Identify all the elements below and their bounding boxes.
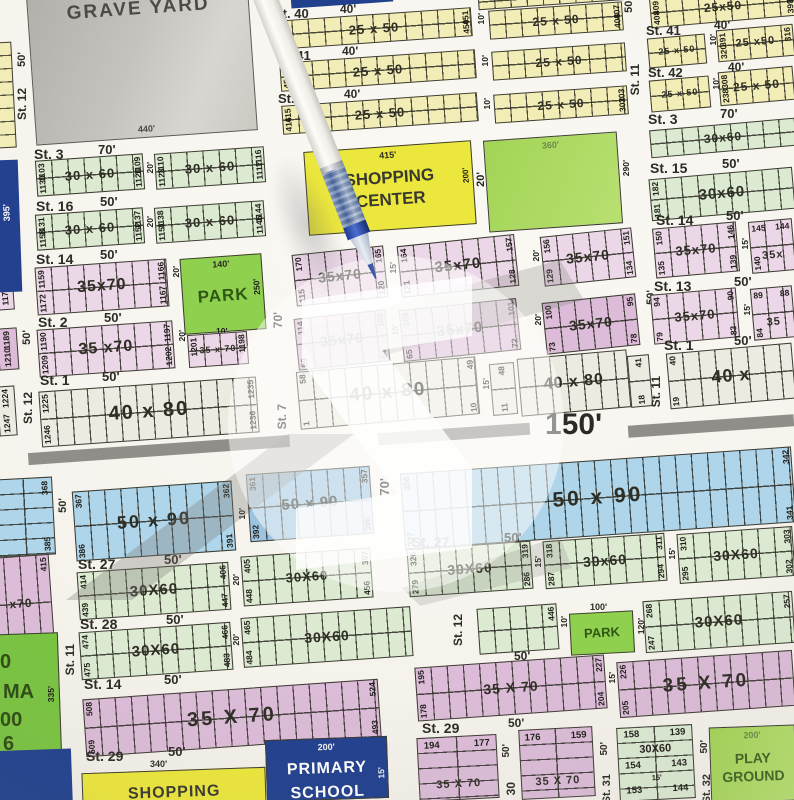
street-st16: St. 16 <box>36 199 73 213</box>
street-st1r: St. 1 <box>664 338 694 352</box>
plot-number: 95 <box>625 296 634 306</box>
street-st15r-width: 50' <box>722 157 740 170</box>
plot-number: 446 <box>546 606 555 621</box>
street-blue50: 50' <box>58 498 69 513</box>
plot-row: 35 X 70 195 178 227 204 <box>414 654 607 721</box>
plot-number: 145 <box>751 224 766 234</box>
plot-number: 182 <box>651 181 661 196</box>
plot-number: 176 <box>524 733 540 743</box>
plot-number: 139 <box>728 254 738 269</box>
plot-number: 109 <box>375 313 385 328</box>
plot-number: 466 <box>220 625 229 640</box>
street-st42r: St. 42 <box>648 66 683 79</box>
street-st29-width: 50' <box>168 745 186 758</box>
street-st29: St. 29 <box>86 749 123 763</box>
plot-number: 294 <box>656 564 665 579</box>
block-dim-side: 200' <box>462 167 471 183</box>
plot-size: 40 x 80 <box>519 370 628 395</box>
plot-row: 35x70 1159 1172 1166 1167 <box>34 258 169 315</box>
gap-dim: 20' <box>146 162 155 173</box>
street-w50b: 50' <box>600 742 610 756</box>
plot-size: 40 x <box>668 361 793 390</box>
block-dim-top: 340' <box>150 760 167 769</box>
plot-size: 25 x 50 <box>651 87 710 101</box>
plot-number: 1201 <box>189 337 199 356</box>
gap-dim: 20' <box>534 314 543 325</box>
plot-size: 30 x 60 <box>156 211 265 232</box>
block-dim-side: 335' <box>47 686 56 702</box>
plot-number: 1210 <box>3 348 13 367</box>
plot-size: 35x70 <box>544 312 637 336</box>
park-label: PARK <box>571 624 634 640</box>
plot-number: 1172 <box>38 293 48 312</box>
plot-number: 447 <box>220 593 229 608</box>
plot-number: 10 <box>469 402 478 412</box>
shopping-label: SHOPPING <box>83 782 265 800</box>
plot-number: 1190 <box>39 332 49 351</box>
street-st12-top-width: 50' <box>17 52 28 67</box>
park-block-small: PARK <box>569 610 635 655</box>
plot-row: 35 X 70 226 205 <box>616 650 794 718</box>
plot-size: 30x60 <box>651 125 794 150</box>
gap-dim: 10' <box>483 98 492 109</box>
block-dim-top: 140' <box>181 257 261 272</box>
street-st42-width: 40' <box>344 88 360 100</box>
plot-row: 25 x 50 <box>647 34 707 69</box>
gap-dim: 15' <box>668 548 677 559</box>
plot-number: 100 <box>544 305 554 320</box>
plot-number: 159 <box>570 730 586 740</box>
street-st31: St. 31 <box>602 774 613 800</box>
plot-row: 25 x50 391 320 316 <box>716 24 794 63</box>
plot-number: 164 <box>399 248 409 263</box>
plot-number: 156 <box>542 239 552 254</box>
plot-size: 35 X 70 <box>618 668 793 699</box>
street-st1-width: 50' <box>102 370 120 383</box>
plot-number: 1246 <box>43 425 53 444</box>
plot-number: 368 <box>40 481 49 496</box>
plot-number: 19 <box>672 396 681 406</box>
street-w50a: 50' <box>502 744 512 758</box>
plot-number: 101 <box>506 301 516 316</box>
plot-size: 30X60 <box>409 557 532 579</box>
street-st40-width: 40' <box>340 3 356 15</box>
plot-number: 135 <box>657 261 667 276</box>
grave-yard-label: GRAVE YARD <box>28 0 249 26</box>
street-st14b: St. 14 <box>84 677 121 691</box>
plot-size: 30X60 <box>679 543 794 565</box>
plot-size: 30X60 <box>79 578 230 603</box>
plot-number: 1167 <box>158 285 168 304</box>
school-label: PRIMARY <box>267 759 387 779</box>
plot-number: 1152 <box>133 222 143 241</box>
play-ground-label <box>487 168 619 177</box>
plot-size: 35 x70 <box>39 336 174 361</box>
plot-size: 35 X 70 <box>420 777 498 792</box>
plot-size: 40 x 80 <box>298 375 477 409</box>
plot-number: 205 <box>621 700 630 715</box>
street-st28-width: 50' <box>166 613 184 626</box>
block-dim-top: 200' <box>266 741 386 754</box>
street-st3-width: 70' <box>98 143 116 156</box>
plot-number: 1151 <box>157 222 167 241</box>
plot-number: 146 <box>725 225 735 240</box>
plot-number: 227 <box>594 658 603 673</box>
plot-size: 25 x 50 <box>277 15 471 42</box>
plot-number: 151 <box>621 231 631 246</box>
plot-number: 178 <box>419 704 428 719</box>
plot-size: 30 x 60 <box>37 218 144 238</box>
plot-number: 456 <box>362 580 371 595</box>
plot-row: 35x70 164 121 157 128 <box>397 234 520 298</box>
plot-number: 94 <box>652 297 661 307</box>
plot-number: 308 <box>720 74 730 89</box>
plot-number: 316 <box>782 27 792 42</box>
plot-number: 143 <box>671 758 687 768</box>
street-st29r-width: 50' <box>508 717 524 729</box>
plot-number: 414 <box>79 575 88 590</box>
cinema-text-fragment: MA <box>3 682 34 702</box>
street-st14-width: 50' <box>100 248 118 261</box>
street-st30: 30 <box>505 782 517 795</box>
plot-number: 302 <box>784 559 793 574</box>
plot-number: 144 <box>672 783 688 793</box>
gap-dim: 15' <box>389 262 398 273</box>
plot-number: 303 <box>782 529 791 544</box>
plot-number: 58 <box>298 374 307 384</box>
gap-dim: 20' <box>232 634 241 645</box>
grave-yard-dim: 440' <box>37 117 257 141</box>
plot-number: 361 <box>248 477 257 492</box>
plot-number: 128 <box>507 269 517 284</box>
plot-size: 25 x 50 <box>495 93 628 114</box>
plot-number: 238 <box>721 88 731 103</box>
edge-plot: 1189 1210 <box>0 327 19 370</box>
plot-number: 319 <box>520 544 529 559</box>
gap-dim: 10' <box>560 616 569 627</box>
street-st27: St. 27 <box>78 557 115 571</box>
plot-number: 1235 <box>246 380 256 399</box>
play-ground-block: 360' <box>483 131 623 232</box>
plot-number: 406 <box>218 565 227 580</box>
shopping-block-2: SHOPPING <box>81 767 266 800</box>
play-ground-label: PLAY <box>711 750 794 767</box>
street-st29r: St. 29 <box>422 721 459 735</box>
plot-row: 30 x 60 1138 1151 1144 1145 <box>154 200 266 244</box>
plot-number: 1124 <box>133 168 143 187</box>
plot-size: 25x50 <box>651 0 794 19</box>
plot-number: 65 <box>405 349 414 359</box>
plot-number: 1197 <box>162 323 172 342</box>
plot-number: 392 <box>251 524 260 539</box>
plot-number: 139 <box>669 727 685 737</box>
plot-size: 35x70 <box>653 305 738 325</box>
block-dim-side: 290' <box>622 160 631 176</box>
cinema-text-fragment: 0 <box>0 652 11 672</box>
play-ground-label2: GROUND <box>711 768 794 785</box>
plot-size: 25 x 50 <box>720 76 794 94</box>
plot-number: 11 <box>500 403 509 413</box>
plot-row: 30X60 474 475 466 483 <box>79 622 234 680</box>
plot-row: 35x70 100 73 95 78 <box>542 293 641 355</box>
plot-number: 399 <box>785 0 794 14</box>
street-st11b: St. 11 <box>64 644 76 675</box>
plot-block: 158 139 30X60 154 143 15' 153 144 <box>616 724 696 800</box>
gap-dim: 10' <box>477 13 486 24</box>
street-st12-mid: St. 12 <box>22 392 34 424</box>
road-strip-left: 395' <box>0 160 22 293</box>
plot-row: 25 x 50 <box>491 42 627 80</box>
plot-row: 50 x 90 361 392 357 396 <box>246 466 374 542</box>
plot-number: 465 <box>243 620 252 635</box>
plot-number: 48 <box>497 366 506 376</box>
plot-number: 1202 <box>164 346 174 365</box>
plot-number: 177 <box>474 738 490 748</box>
plot-number: 318 <box>545 544 554 559</box>
plot-number: 1166 <box>156 262 166 281</box>
plot-number: 367 <box>74 494 83 509</box>
street-st11r: St. 11 <box>650 376 662 407</box>
street-st11-top: St. 11 <box>629 64 641 95</box>
plot-number: 397 <box>360 551 369 566</box>
plot-size: 35 X 70 <box>522 774 594 789</box>
plot-size: 35x70 <box>542 245 633 268</box>
plot-number: 302 <box>617 97 626 112</box>
plot-number: 204 <box>596 691 605 706</box>
plot-size: 35 X 70 <box>417 674 606 701</box>
plot-number: 362 <box>221 484 230 499</box>
road-dash <box>378 423 530 446</box>
plot-row: 35 x 70 1201 1198 <box>187 331 249 368</box>
plot-number: 396 <box>363 517 372 532</box>
plot-number: 90 <box>725 291 734 301</box>
plot-row: 30X60 465 484 <box>240 606 413 668</box>
plot-number: 78 <box>629 333 638 343</box>
street-st3r: St. 3 <box>648 112 678 126</box>
street-st15r: St. 15 <box>650 161 687 175</box>
plot-row: 145 144 140 35x <box>748 218 794 274</box>
plot-number: 1 <box>302 421 311 426</box>
plot-row: 35x70 150 135 146 139 <box>652 221 740 278</box>
plot-number: 493 <box>370 720 379 735</box>
plot-number: 484 <box>245 650 254 665</box>
street-st12b: St. 12 <box>452 614 464 646</box>
plot-number: 483 <box>222 653 231 668</box>
plot-number: 64 <box>379 349 388 359</box>
plot-number: 49 <box>465 359 474 369</box>
road-left-dim: 395' <box>2 204 12 221</box>
street-st1r-width: 50' <box>734 334 752 347</box>
road-main-label: 150' <box>545 410 602 440</box>
plot-number: 120 <box>376 280 386 295</box>
school-label2: SCHOOL <box>268 783 388 800</box>
block-dim-side: 250' <box>252 278 262 295</box>
gap-dim: 20' <box>146 216 155 227</box>
plot-number: 247 <box>647 635 656 650</box>
plot-number: 1123 <box>157 168 167 187</box>
street-st7: St. 7 <box>276 404 288 429</box>
plot-size: x70 <box>0 595 51 611</box>
street-st14b-width: 50' <box>164 673 182 686</box>
plot-number: 415 <box>38 557 47 572</box>
plot-row: 30 x 60 1103 1130 1109 1124 <box>35 153 145 196</box>
plot-number: 268 <box>645 604 654 619</box>
street-st27-width: 50' <box>164 553 182 566</box>
gap-dim: 15' <box>608 672 617 683</box>
plot-number: 279 <box>411 579 420 594</box>
plot-row: 25 x 50 <box>649 75 712 112</box>
plot-number: 134 <box>624 260 634 275</box>
primary-school-block: 200' PRIMARY SCHOOL 15' <box>265 736 389 800</box>
plot-row: 30X60 268 247 257 <box>642 591 794 653</box>
plot-number: 341 <box>784 505 793 520</box>
play-ground-block-2: 200' PLAY GROUND <box>709 725 794 800</box>
street-park70: 70' <box>272 312 284 328</box>
plot-row: 40 x 80 1225 1246 1235 1236 <box>38 376 259 447</box>
plot-number: 72 <box>510 337 519 347</box>
plot-number: 1225 <box>41 394 51 413</box>
plot-number: 356 <box>402 476 411 491</box>
plot-number: 1236 <box>248 411 258 430</box>
plot-number: 405 <box>243 559 252 574</box>
plot-number: 391 <box>225 533 234 548</box>
plot-size: 40 x 80 <box>41 394 258 429</box>
plot-number: 310 <box>679 536 688 551</box>
plot-number: 342 <box>781 450 790 465</box>
plot-number: 40 <box>668 356 677 366</box>
plot-size: 30X60 <box>645 609 794 634</box>
plot-size: 35x <box>751 248 794 263</box>
edge-plot: 1224 1247 <box>0 385 18 436</box>
gap-dim: 20' <box>532 250 541 261</box>
plot-number: 1224 <box>0 389 10 408</box>
street-lc-width: 50' <box>22 330 33 345</box>
grave-yard-block: GRAVE YARD 440' <box>26 0 258 146</box>
plot-number: 311 <box>654 536 663 550</box>
road-dash <box>628 414 794 438</box>
street-st28: St. 28 <box>80 617 117 631</box>
plot-size: 50 x 90 <box>249 492 372 515</box>
plot-number: 1130 <box>38 175 48 194</box>
plot-number: 108 <box>401 312 411 327</box>
street-st14: St. 14 <box>36 252 73 266</box>
plot-row: 50 x 90 367 386 362 391 <box>72 481 236 562</box>
plot-number: 474 <box>81 635 90 650</box>
plot-row: 30X60 405 448 397 456 <box>240 548 373 607</box>
plot-number: 326 <box>409 552 418 567</box>
plot-block: 48 11 <box>489 362 518 416</box>
plot-number: 448 <box>245 589 254 604</box>
plot-row: 30X60 310 295 303 302 <box>676 526 794 584</box>
plot-size: 50 x 90 <box>403 473 794 521</box>
plot-row: 40 x 40 19 <box>666 343 794 410</box>
plot-number: 154 <box>625 761 641 771</box>
plot-number: 287 <box>547 571 556 586</box>
plot-number: 158 <box>623 730 639 740</box>
plot-size: 35x70 <box>399 252 516 279</box>
gap-dim: 15' <box>391 324 400 335</box>
plot-row: 35x70 156 129 151 134 <box>540 227 637 286</box>
plot-size: 35x70 <box>655 239 738 259</box>
street-blue70: 70' <box>378 478 391 496</box>
plot-size: 30X60 <box>243 624 412 650</box>
plot-number: 153 <box>626 786 642 796</box>
plot-size: 35 <box>753 315 794 329</box>
block-dim-top: 200' <box>710 730 794 742</box>
gap-dim: 20' <box>178 330 187 341</box>
plot-size: 25 x 50 <box>649 44 706 58</box>
plot-size: 25 x 50 <box>493 50 626 71</box>
plot-number: 408 <box>612 13 621 28</box>
plot-row: 35x70 108 65 101 72 <box>399 298 522 362</box>
plot-row: 30X60 326 279 319 286 <box>406 541 533 598</box>
plot-number: 295 <box>681 566 690 581</box>
street-st2-width: 50' <box>104 311 122 324</box>
plot-row: 30x60 318 287 311 294 <box>542 533 667 589</box>
street-st14r-width: 50' <box>726 209 744 222</box>
cinema-text-fragment: 00 <box>0 710 22 730</box>
plot-block: 194 177 35 X 70 <box>416 734 499 800</box>
plot-number: 439 <box>81 602 90 617</box>
plot-number: 88 <box>779 289 789 298</box>
road-corner <box>0 749 73 800</box>
plot-size: 35 X 70 <box>85 697 380 737</box>
plot-size: 30x60 <box>545 549 666 571</box>
plot-number: 357 <box>359 469 368 484</box>
plot-size: 35x70 <box>37 274 168 299</box>
plot-number: 59 <box>300 357 309 367</box>
gap-dim: 15' <box>534 556 543 567</box>
street-st16-width: 50' <box>100 195 118 208</box>
plot-row: 25 x 50 308 238 <box>718 66 794 106</box>
plot-size: 35x70 <box>401 316 518 343</box>
plot-number: 1159 <box>37 270 47 289</box>
plot-number: 194 <box>424 741 440 751</box>
block-dim-side: 15' <box>376 767 385 779</box>
gap-dim: 10' <box>238 508 247 519</box>
plot-number: 18 <box>637 394 646 404</box>
plot-number: 450 <box>461 19 470 34</box>
street-st13r-width: 50' <box>734 275 752 288</box>
plot-number: 286 <box>522 572 531 587</box>
plot-row: 30X60 414 439 406 447 <box>77 562 232 620</box>
plot-number: 385 <box>43 536 52 551</box>
plot-size: 30 x 60 <box>37 164 144 184</box>
site-plan-map: GRAVE YARD 440' St. 12 50' St. 40 40' 25… <box>0 0 794 800</box>
plot-number: 89 <box>753 291 763 300</box>
plot-number: 1247 <box>2 414 12 433</box>
plot-number: 226 <box>618 664 627 679</box>
plot-number: 1158 <box>38 229 48 248</box>
gap-dim: 20' <box>232 574 241 585</box>
plot-number: 73 <box>548 341 557 351</box>
plot-number: 157 <box>504 237 514 252</box>
block-dim-top: 100' <box>590 603 607 612</box>
plot-number: 41 <box>634 358 643 368</box>
plot-number: 150 <box>654 231 664 246</box>
plot-size: 50 x 90 <box>75 506 234 535</box>
plot-number: 257 <box>782 594 791 609</box>
plot-number: 144 <box>775 221 790 231</box>
plot-size: 30X60 <box>81 638 232 663</box>
plot-size: 25 x 50 <box>490 9 623 30</box>
gap-dim: 10' <box>481 55 490 66</box>
plot-size: 30x60 <box>651 180 794 207</box>
plot-number: 121 <box>402 280 412 295</box>
plot-row: 89 88 84 35 <box>750 285 794 340</box>
street-st3r-width: 70' <box>720 107 738 120</box>
plot-row: 40 x 80 <box>517 349 632 416</box>
